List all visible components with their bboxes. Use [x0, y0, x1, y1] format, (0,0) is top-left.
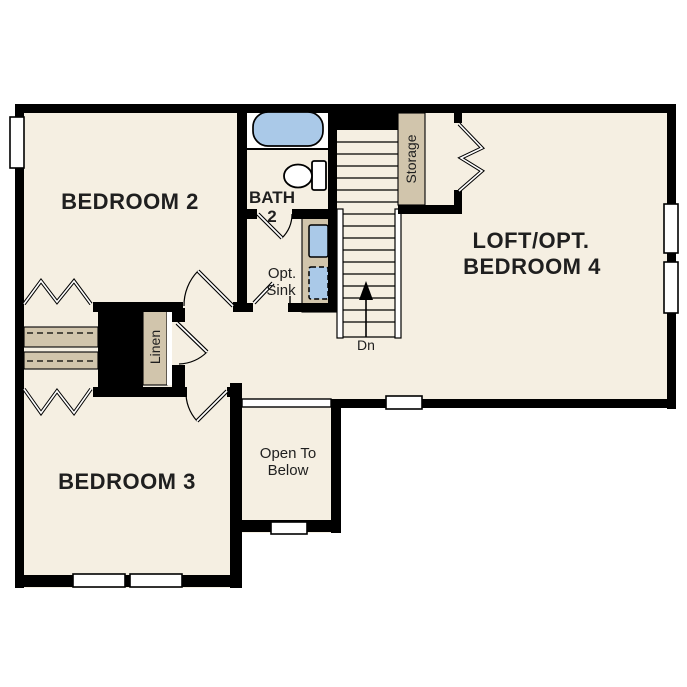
floor-plan-page: BEDROOM 2 BEDROOM 3 LOFT/OPT. BEDROOM 4 …	[0, 0, 687, 687]
wall-stair-head	[337, 113, 398, 130]
window-bedroom2-left	[10, 117, 24, 168]
opt-sink-label-line2: Sink	[266, 282, 296, 299]
wall-bedroom3-right	[230, 383, 242, 588]
window-bedroom3-2	[130, 574, 182, 587]
wall-top	[15, 104, 676, 113]
toilet-bowl	[284, 165, 312, 188]
toilet	[284, 161, 326, 190]
window-open-below	[271, 522, 307, 534]
stair-rail-right	[395, 209, 401, 338]
linen-label: Linen	[147, 330, 163, 364]
stair-rail-left	[337, 209, 343, 338]
wall-bedroom3-top-jamb	[227, 387, 242, 397]
wall-storage-jamb-top	[454, 113, 462, 123]
floor-plan-drawing: BEDROOM 2 BEDROOM 3 LOFT/OPT. BEDROOM 4 …	[0, 0, 687, 687]
wall-bedroom3-top-c	[143, 387, 187, 397]
bedroom3-label: BEDROOM 3	[58, 469, 196, 494]
bathtub	[253, 112, 323, 146]
wall-right	[667, 104, 676, 409]
loft-label-line2: BEDROOM 4	[463, 254, 601, 279]
wall-linen-jamb-top	[172, 308, 185, 322]
window-loft-right-1	[664, 204, 678, 253]
wall-bath-stairs	[328, 104, 337, 312]
wall-hall-top-jamb	[233, 302, 247, 312]
storage-label: Storage	[403, 134, 419, 183]
stairs-dn-label: Dn	[357, 337, 375, 353]
wall-left	[15, 104, 24, 588]
linen-clearance-strip	[167, 309, 172, 385]
loft-label-line1: LOFT/OPT.	[473, 228, 590, 253]
vanity-sink	[309, 225, 328, 257]
window-loft-bottom	[386, 396, 422, 409]
wall-bath-divider-left	[247, 209, 257, 219]
window-loft-right-2	[664, 262, 678, 313]
wall-bedroom3-top-b	[93, 387, 143, 397]
vanity-sink-optional	[309, 267, 328, 299]
bedroom2-label: BEDROOM 2	[61, 189, 199, 214]
opt-sink-label-line1: Opt.	[268, 265, 296, 282]
wall-sinkroom-bottom-right	[288, 303, 337, 312]
wall-bedroom2-bath	[237, 104, 247, 312]
wall-open-below-right	[331, 399, 341, 533]
toilet-tank	[312, 161, 326, 190]
wall-bedroom3-bottom	[15, 575, 242, 587]
wall-bedroom3-top-a	[15, 387, 23, 397]
wall-storage-jamb-bottom	[454, 190, 462, 205]
wall-loft-bottom	[333, 399, 676, 408]
window-bedroom3-1	[73, 574, 125, 587]
wall-core-mass	[98, 302, 143, 387]
wall-hall-top-a	[15, 302, 23, 312]
open-below-edge	[242, 399, 331, 407]
wall-storage-bottom	[398, 205, 462, 214]
bedroom2-closet-shelf	[24, 327, 98, 347]
bath-label-line2: 2	[267, 207, 276, 226]
wall-linen-jamb-bottom	[172, 365, 185, 387]
wall-bath-divider-right	[292, 209, 337, 219]
open-below-label-line2: Below	[268, 462, 309, 479]
open-below-label-line1: Open To	[260, 445, 316, 462]
bath-label-line1: BATH	[249, 188, 295, 207]
